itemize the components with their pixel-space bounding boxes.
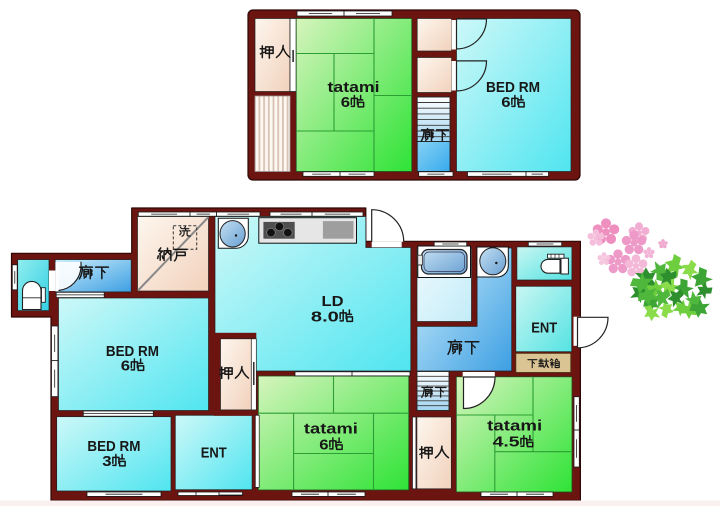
svg-text:3: 3 bbox=[102, 453, 111, 470]
svg-text:ENT: ENT bbox=[201, 445, 227, 462]
svg-text:BED RM: BED RM bbox=[486, 79, 540, 96]
svg-text:tatami: tatami bbox=[487, 418, 542, 435]
svg-text:6: 6 bbox=[501, 94, 510, 111]
svg-text:tatami: tatami bbox=[328, 79, 380, 96]
svg-text:BED RM: BED RM bbox=[87, 438, 140, 455]
svg-text:4.5: 4.5 bbox=[493, 435, 520, 451]
svg-text:BED RM: BED RM bbox=[106, 343, 159, 360]
svg-text:8.0: 8.0 bbox=[311, 308, 339, 325]
svg-text:6: 6 bbox=[319, 436, 328, 453]
svg-text:6: 6 bbox=[341, 94, 350, 111]
svg-text:ENT: ENT bbox=[531, 320, 557, 337]
svg-text:6: 6 bbox=[121, 357, 130, 374]
svg-text:tatami: tatami bbox=[304, 421, 358, 438]
